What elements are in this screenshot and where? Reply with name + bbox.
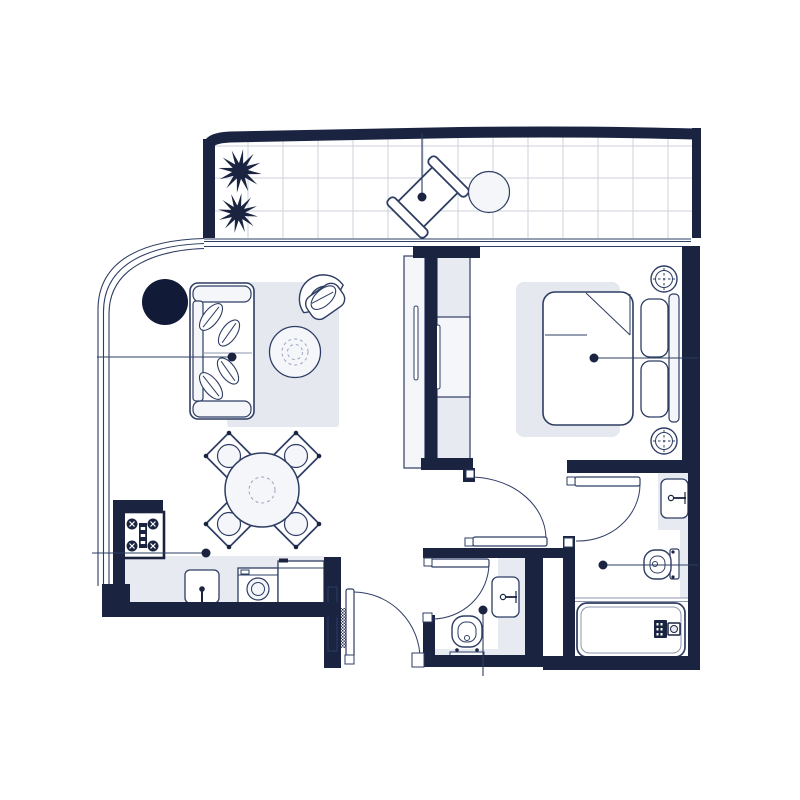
wc-top-wall	[423, 548, 575, 558]
marker-bathroom[interactable]	[599, 561, 608, 570]
marker-bed[interactable]	[590, 354, 599, 363]
plant-icon	[209, 184, 266, 241]
bathtub	[577, 603, 685, 657]
kitchen-bottom-wall	[128, 602, 341, 617]
entry-door-leaf[interactable]	[346, 589, 354, 657]
dining-table	[225, 453, 299, 527]
marker-stove[interactable]	[202, 549, 211, 558]
bathroom-door-leaf[interactable]	[575, 477, 640, 486]
shower-screen	[575, 598, 688, 602]
bottom-wall-right	[543, 656, 700, 670]
bathroom-toilet	[644, 549, 679, 579]
bedroom-right-wall	[682, 246, 700, 462]
bedside-lamp	[651, 428, 677, 454]
bathroom-door-swing	[576, 485, 640, 541]
marker-sofa[interactable]	[228, 353, 237, 362]
door-stop	[465, 538, 473, 546]
plant-icon	[215, 146, 265, 196]
side-table	[142, 279, 188, 325]
wardrobe-left-closet	[404, 256, 425, 468]
wardrobe-mid-wall	[425, 256, 437, 468]
door-stop	[567, 477, 575, 485]
door-stop	[466, 470, 474, 478]
wardrobe-right-closet	[436, 256, 470, 468]
kitchen-left-wall	[113, 500, 125, 588]
sliding-glass-doors	[204, 239, 691, 247]
wc-right-wall	[525, 548, 543, 665]
marker-lounger[interactable]	[418, 193, 427, 202]
refrigerator	[278, 559, 324, 608]
pillow	[641, 299, 668, 357]
door-stop	[423, 613, 432, 622]
door-stop	[345, 655, 354, 664]
bedside-lamp	[651, 266, 677, 292]
bathroom-top-wall	[567, 460, 698, 473]
washing-machine	[238, 568, 278, 607]
wardrobe-top-cap	[413, 246, 480, 258]
stove	[121, 512, 164, 558]
kitchen-sink	[185, 570, 219, 604]
pillow	[641, 361, 668, 417]
entry-door-swing	[354, 592, 420, 659]
door-stop	[424, 558, 432, 566]
balcony-left-wall	[203, 139, 215, 238]
bedroom-door-swing	[467, 477, 546, 538]
balcony-top-wall	[209, 132, 694, 152]
balcony-round-table	[469, 172, 510, 213]
coffee-table	[270, 327, 321, 378]
marker-wc[interactable]	[479, 606, 488, 615]
balcony-right-wall	[692, 128, 701, 238]
wc-sink	[492, 577, 519, 617]
kitchen-corner-wall	[102, 584, 130, 617]
door-stop	[564, 538, 573, 547]
floor-plan-canvas	[0, 0, 800, 800]
bathroom-sink	[661, 479, 688, 518]
floor-plan-page	[0, 0, 800, 800]
balcony-plants	[209, 146, 266, 241]
sofa	[190, 283, 254, 419]
wc-door-leaf[interactable]	[431, 559, 489, 567]
door-stop	[412, 653, 424, 667]
bedroom-door-leaf[interactable]	[473, 537, 547, 546]
